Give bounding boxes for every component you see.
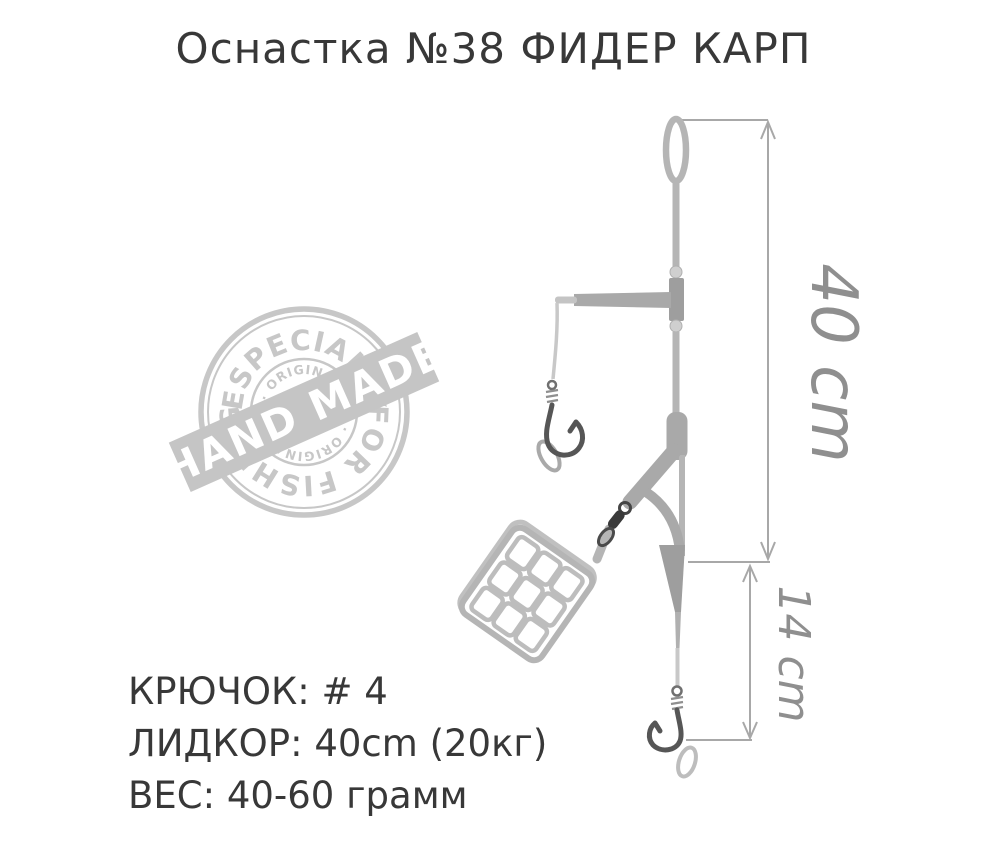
t-swivel-body [669,278,684,321]
feeder-cage [455,517,599,664]
dimension-lines [680,120,775,740]
bottom-hook-eye [673,687,682,696]
top-loop [666,119,686,181]
side-arm-tip [555,297,577,304]
spec-line-hook: КРЮЧОК: # 4 [128,666,547,718]
page: Оснастка №38 ФИДЕР КАРП ESPECIALLY FOR F… [0,0,987,863]
side-hook-knot [546,390,558,402]
stop-bead-upper [670,266,682,278]
spec-list: КРЮЧОК: # 4 ЛИДКОР: 40cm (20кг) ВЕС: 40-… [128,666,547,822]
bottom-hair-loop [675,745,699,778]
bottom-hook [649,710,681,750]
anti-tangle-boom-brace [646,492,680,551]
stop-bead-lower [670,320,682,332]
tail-leader-mid [675,612,681,648]
side-hooklink-line [553,303,557,379]
handmade-stamp: ESPECIALLY FOR FISHING · ORIGINAL · · OR… [155,309,452,515]
side-arm [574,292,671,308]
dim-40-label: 40 cm [796,263,870,462]
spec-line-weight: ВЕС: 40-60 грамм [128,770,547,822]
spec-line-leader: ЛИДКОР: 40cm (20кг) [128,718,547,770]
dim-14-label: 14 cm [768,585,819,722]
tail-leader-taper [659,545,685,612]
bottom-hook-knot [671,697,683,709]
side-hook [547,405,583,455]
side-hook-eye [548,381,556,389]
